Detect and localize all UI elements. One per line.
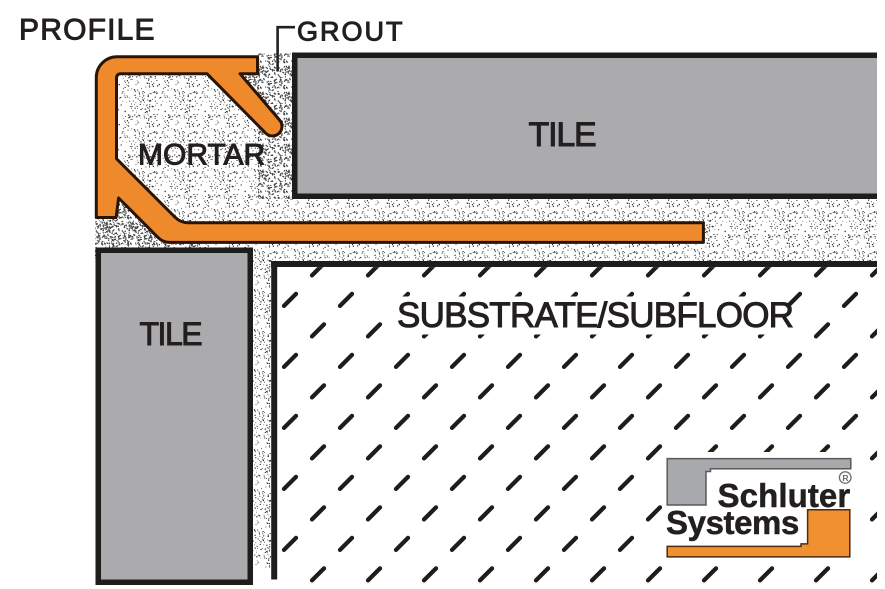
svg-text:R: R (842, 473, 849, 483)
svg-text:Systems: Systems (666, 504, 799, 541)
svg-text:PROFILE: PROFILE (19, 14, 156, 47)
svg-text:SUBSTRATE/SUBFLOOR: SUBSTRATE/SUBFLOOR (397, 296, 793, 335)
svg-text:MORTAR: MORTAR (138, 139, 265, 172)
svg-text:GROUT: GROUT (297, 17, 405, 47)
svg-text:TILE: TILE (140, 316, 202, 352)
svg-text:TILE: TILE (529, 116, 597, 154)
